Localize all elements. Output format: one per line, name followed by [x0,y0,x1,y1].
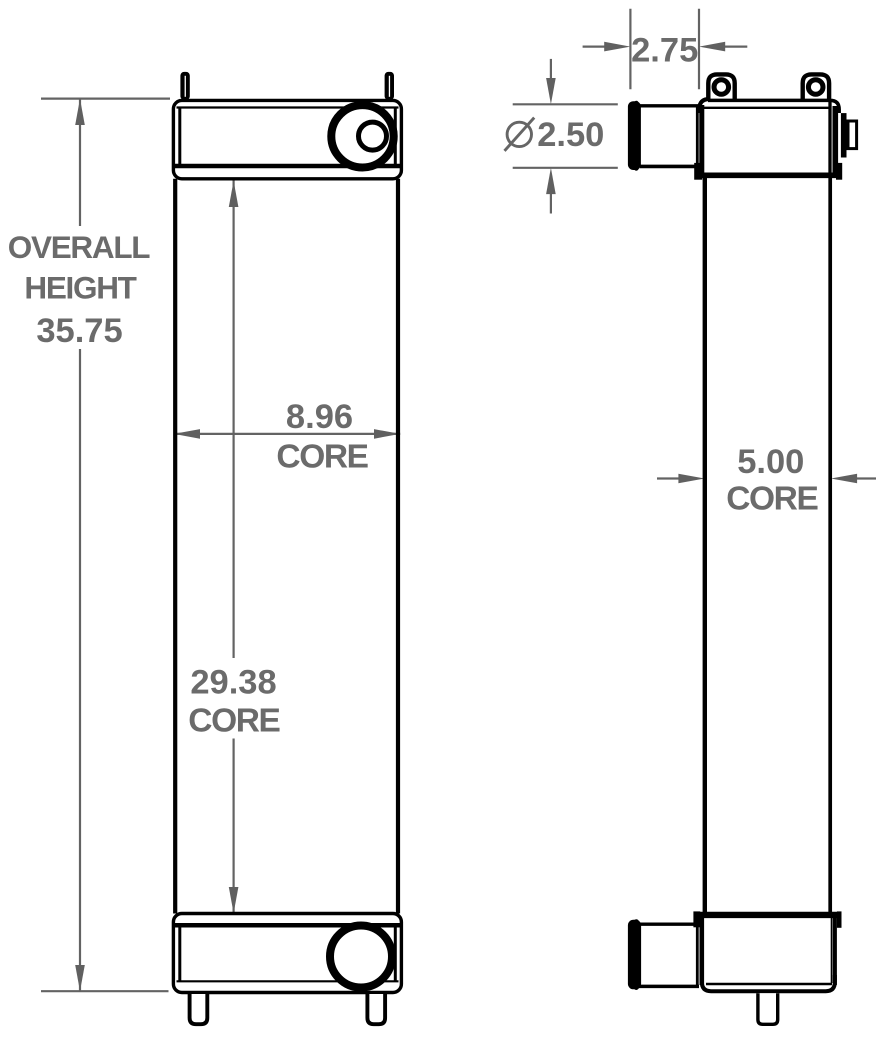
svg-text:CORE: CORE [726,480,818,517]
svg-text:2.50: 2.50 [537,116,604,154]
svg-text:2.75: 2.75 [631,32,698,70]
svg-text:8.96: 8.96 [286,398,353,436]
svg-text:35.75: 35.75 [36,312,122,350]
svg-text:29.38: 29.38 [190,664,276,702]
svg-text:CORE: CORE [276,438,368,475]
svg-text:HEIGHT: HEIGHT [24,269,136,305]
svg-text:CORE: CORE [188,703,280,740]
svg-text:5.00: 5.00 [737,443,804,481]
svg-text:OVERALL: OVERALL [8,229,150,265]
